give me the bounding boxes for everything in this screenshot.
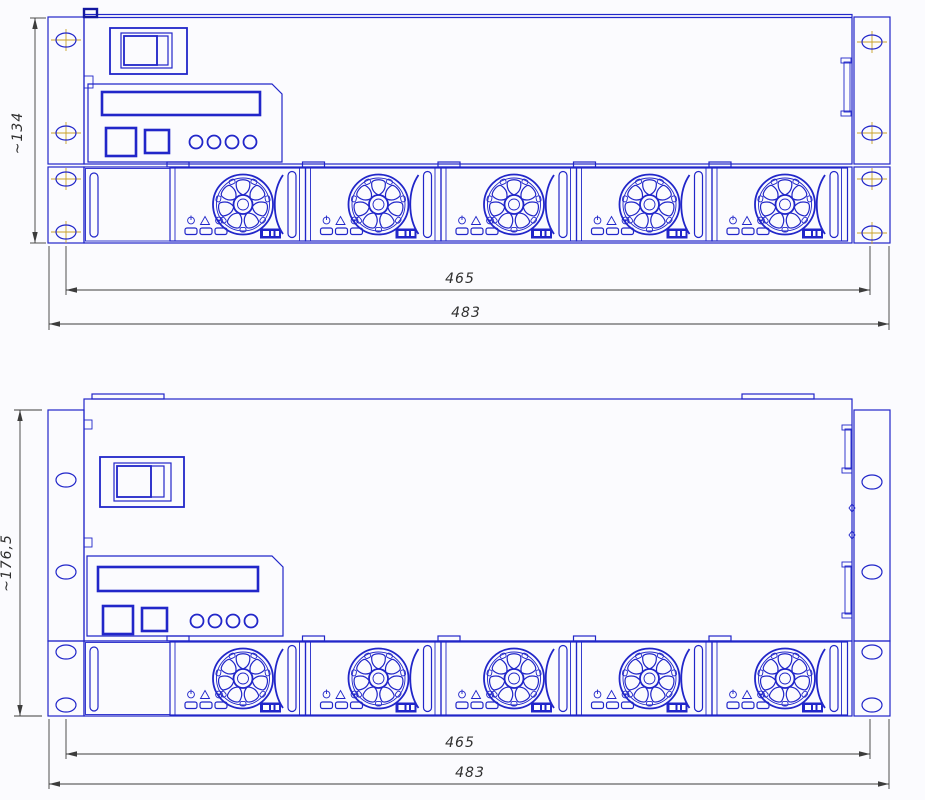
top-left-bracket bbox=[84, 9, 97, 17]
right-edge-rail bbox=[842, 425, 855, 618]
circuit-breaker bbox=[100, 457, 184, 507]
top-edge-tab bbox=[92, 394, 164, 399]
dimension-width-483: 483 bbox=[49, 246, 889, 330]
dim-label-465: 465 bbox=[445, 271, 475, 287]
nav-buttons bbox=[190, 136, 257, 149]
menu-button bbox=[106, 128, 136, 156]
nav-buttons bbox=[191, 615, 258, 628]
rack-ear-left bbox=[48, 410, 84, 716]
technical-drawing: ~134 465 483 bbox=[0, 0, 925, 800]
dimension-height-176: ~176,5 bbox=[0, 410, 42, 716]
fan-row bbox=[84, 162, 852, 243]
dim-label-483: 483 bbox=[451, 305, 481, 321]
dim-label-height: ~176,5 bbox=[0, 534, 15, 592]
display-panel bbox=[87, 556, 283, 636]
blank-module bbox=[86, 169, 171, 242]
chassis-body bbox=[84, 394, 855, 641]
front-view-2u: ~134 465 483 bbox=[10, 9, 890, 330]
breaker-rocker bbox=[117, 466, 151, 497]
module-handle-bar bbox=[90, 173, 98, 237]
fan-row bbox=[84, 636, 852, 716]
front-view-3u: ~176,5 465 483 bbox=[0, 394, 890, 789]
enter-button bbox=[145, 130, 169, 153]
chassis-body bbox=[84, 9, 852, 164]
top-edge-tab bbox=[742, 394, 814, 399]
lcd-screen bbox=[102, 92, 260, 115]
dimension-width-465: 465 bbox=[66, 246, 870, 295]
enter-button bbox=[142, 608, 167, 631]
left-edge-tab bbox=[84, 538, 92, 547]
display-panel bbox=[88, 84, 282, 162]
dimension-width-465: 465 bbox=[66, 719, 870, 759]
rack-ear-right bbox=[854, 410, 890, 716]
circuit-breaker bbox=[110, 28, 187, 74]
right-edge-rail bbox=[841, 58, 851, 116]
rack-ear-right bbox=[854, 17, 890, 244]
dim-label-483: 483 bbox=[455, 765, 485, 781]
rack-ear-left bbox=[48, 17, 84, 243]
blank-module bbox=[86, 643, 171, 715]
lcd-screen bbox=[98, 567, 258, 591]
breaker-rocker bbox=[124, 36, 157, 65]
dim-label-465: 465 bbox=[445, 735, 475, 751]
drawing-sheet: ~134 465 483 bbox=[0, 0, 925, 800]
left-edge-tab bbox=[84, 420, 92, 429]
dimension-height-134: ~134 bbox=[10, 18, 46, 243]
module-handle-bar bbox=[90, 647, 98, 711]
dim-label-height: ~134 bbox=[10, 112, 26, 154]
menu-button bbox=[103, 606, 133, 634]
